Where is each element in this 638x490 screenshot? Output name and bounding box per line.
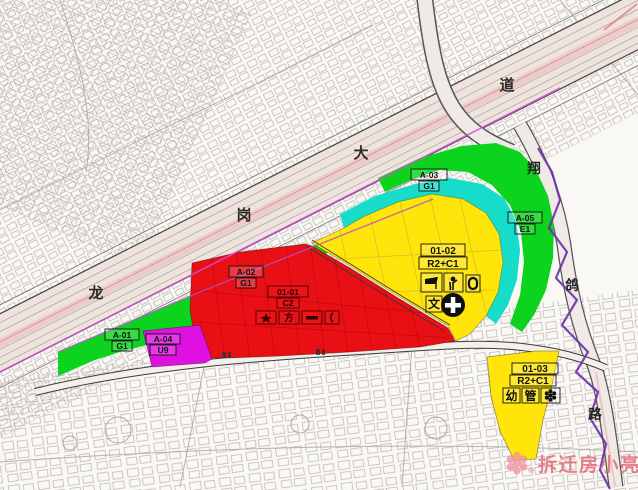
zone-a02-code: A-02 [237, 267, 256, 277]
road-char-lu: 路 [588, 406, 602, 422]
road-char-xiang: 翔 [526, 160, 541, 176]
fang-label: 方 [284, 312, 294, 324]
zone-0101-use: C2 [283, 298, 294, 308]
culture-icon: 文 [428, 296, 441, 311]
planning-map-image: A-03 G1 A-05 E1 01-02 R2+C1 文 [0, 0, 638, 490]
management-label: 管 [524, 388, 536, 403]
zone-a04-use: U9 [158, 345, 169, 355]
zone-0103-code: 01-03 [522, 364, 548, 375]
zone-a03-use: G1 [423, 181, 435, 191]
zone-a04-code: A-04 [154, 334, 173, 344]
road-char-long: 龙 [87, 284, 103, 302]
zone-0102-use: R2+C1 [427, 259, 459, 270]
road-char-da: 大 [353, 144, 368, 162]
road-char-gang: 岗 [236, 206, 251, 224]
zone-a01-code: A-01 [113, 330, 132, 340]
kindergarten-label: 幼 [505, 388, 517, 403]
map-canvas: A-03 G1 A-05 E1 01-02 R2+C1 文 [0, 0, 638, 490]
zone-a02-use: G1 [240, 278, 252, 288]
zone-0103-use: R2+C1 [517, 376, 549, 387]
road-char-dao: 道 [499, 76, 514, 94]
zone-0101-code: 01-01 [277, 287, 299, 297]
zone-a05-code: A-05 [516, 213, 535, 223]
zone-a03-code: A-03 [420, 170, 439, 180]
hospital-cross-icon [441, 293, 465, 317]
watermark-text: 拆迁房小亮 [538, 453, 638, 476]
zone-a01-use: G1 [116, 341, 128, 351]
zone-label-0102: 01-02 R2+C1 [419, 244, 467, 270]
bar-icon [306, 316, 318, 320]
zone-0102-code: 01-02 [430, 246, 456, 257]
road-char-ge: 鸽 [565, 277, 579, 293]
zone-a05-use: E1 [520, 224, 531, 234]
